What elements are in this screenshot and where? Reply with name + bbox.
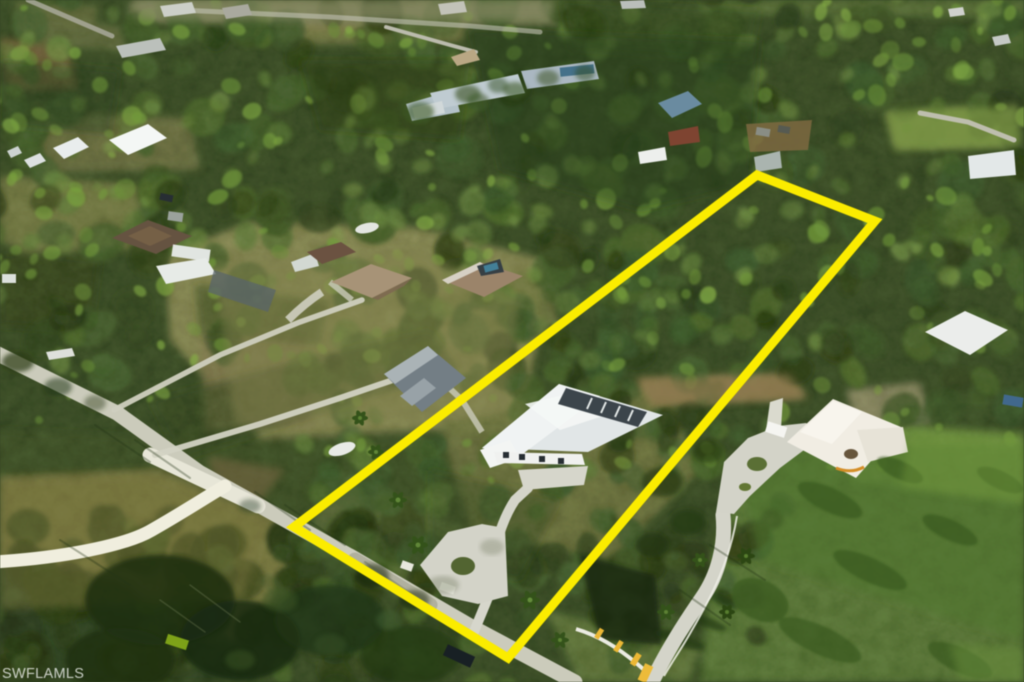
svg-text:SWFLAMLS: SWFLAMLS [2, 666, 84, 682]
